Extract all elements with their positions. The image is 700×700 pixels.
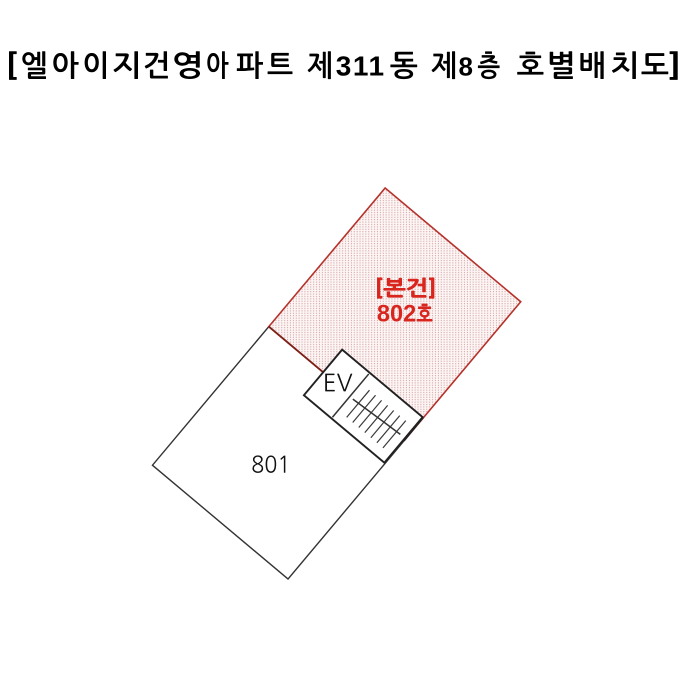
svg-text:802: 802 [377,302,416,328]
svg-text:311: 311 [336,51,386,82]
svg-text:8: 8 [459,52,473,82]
